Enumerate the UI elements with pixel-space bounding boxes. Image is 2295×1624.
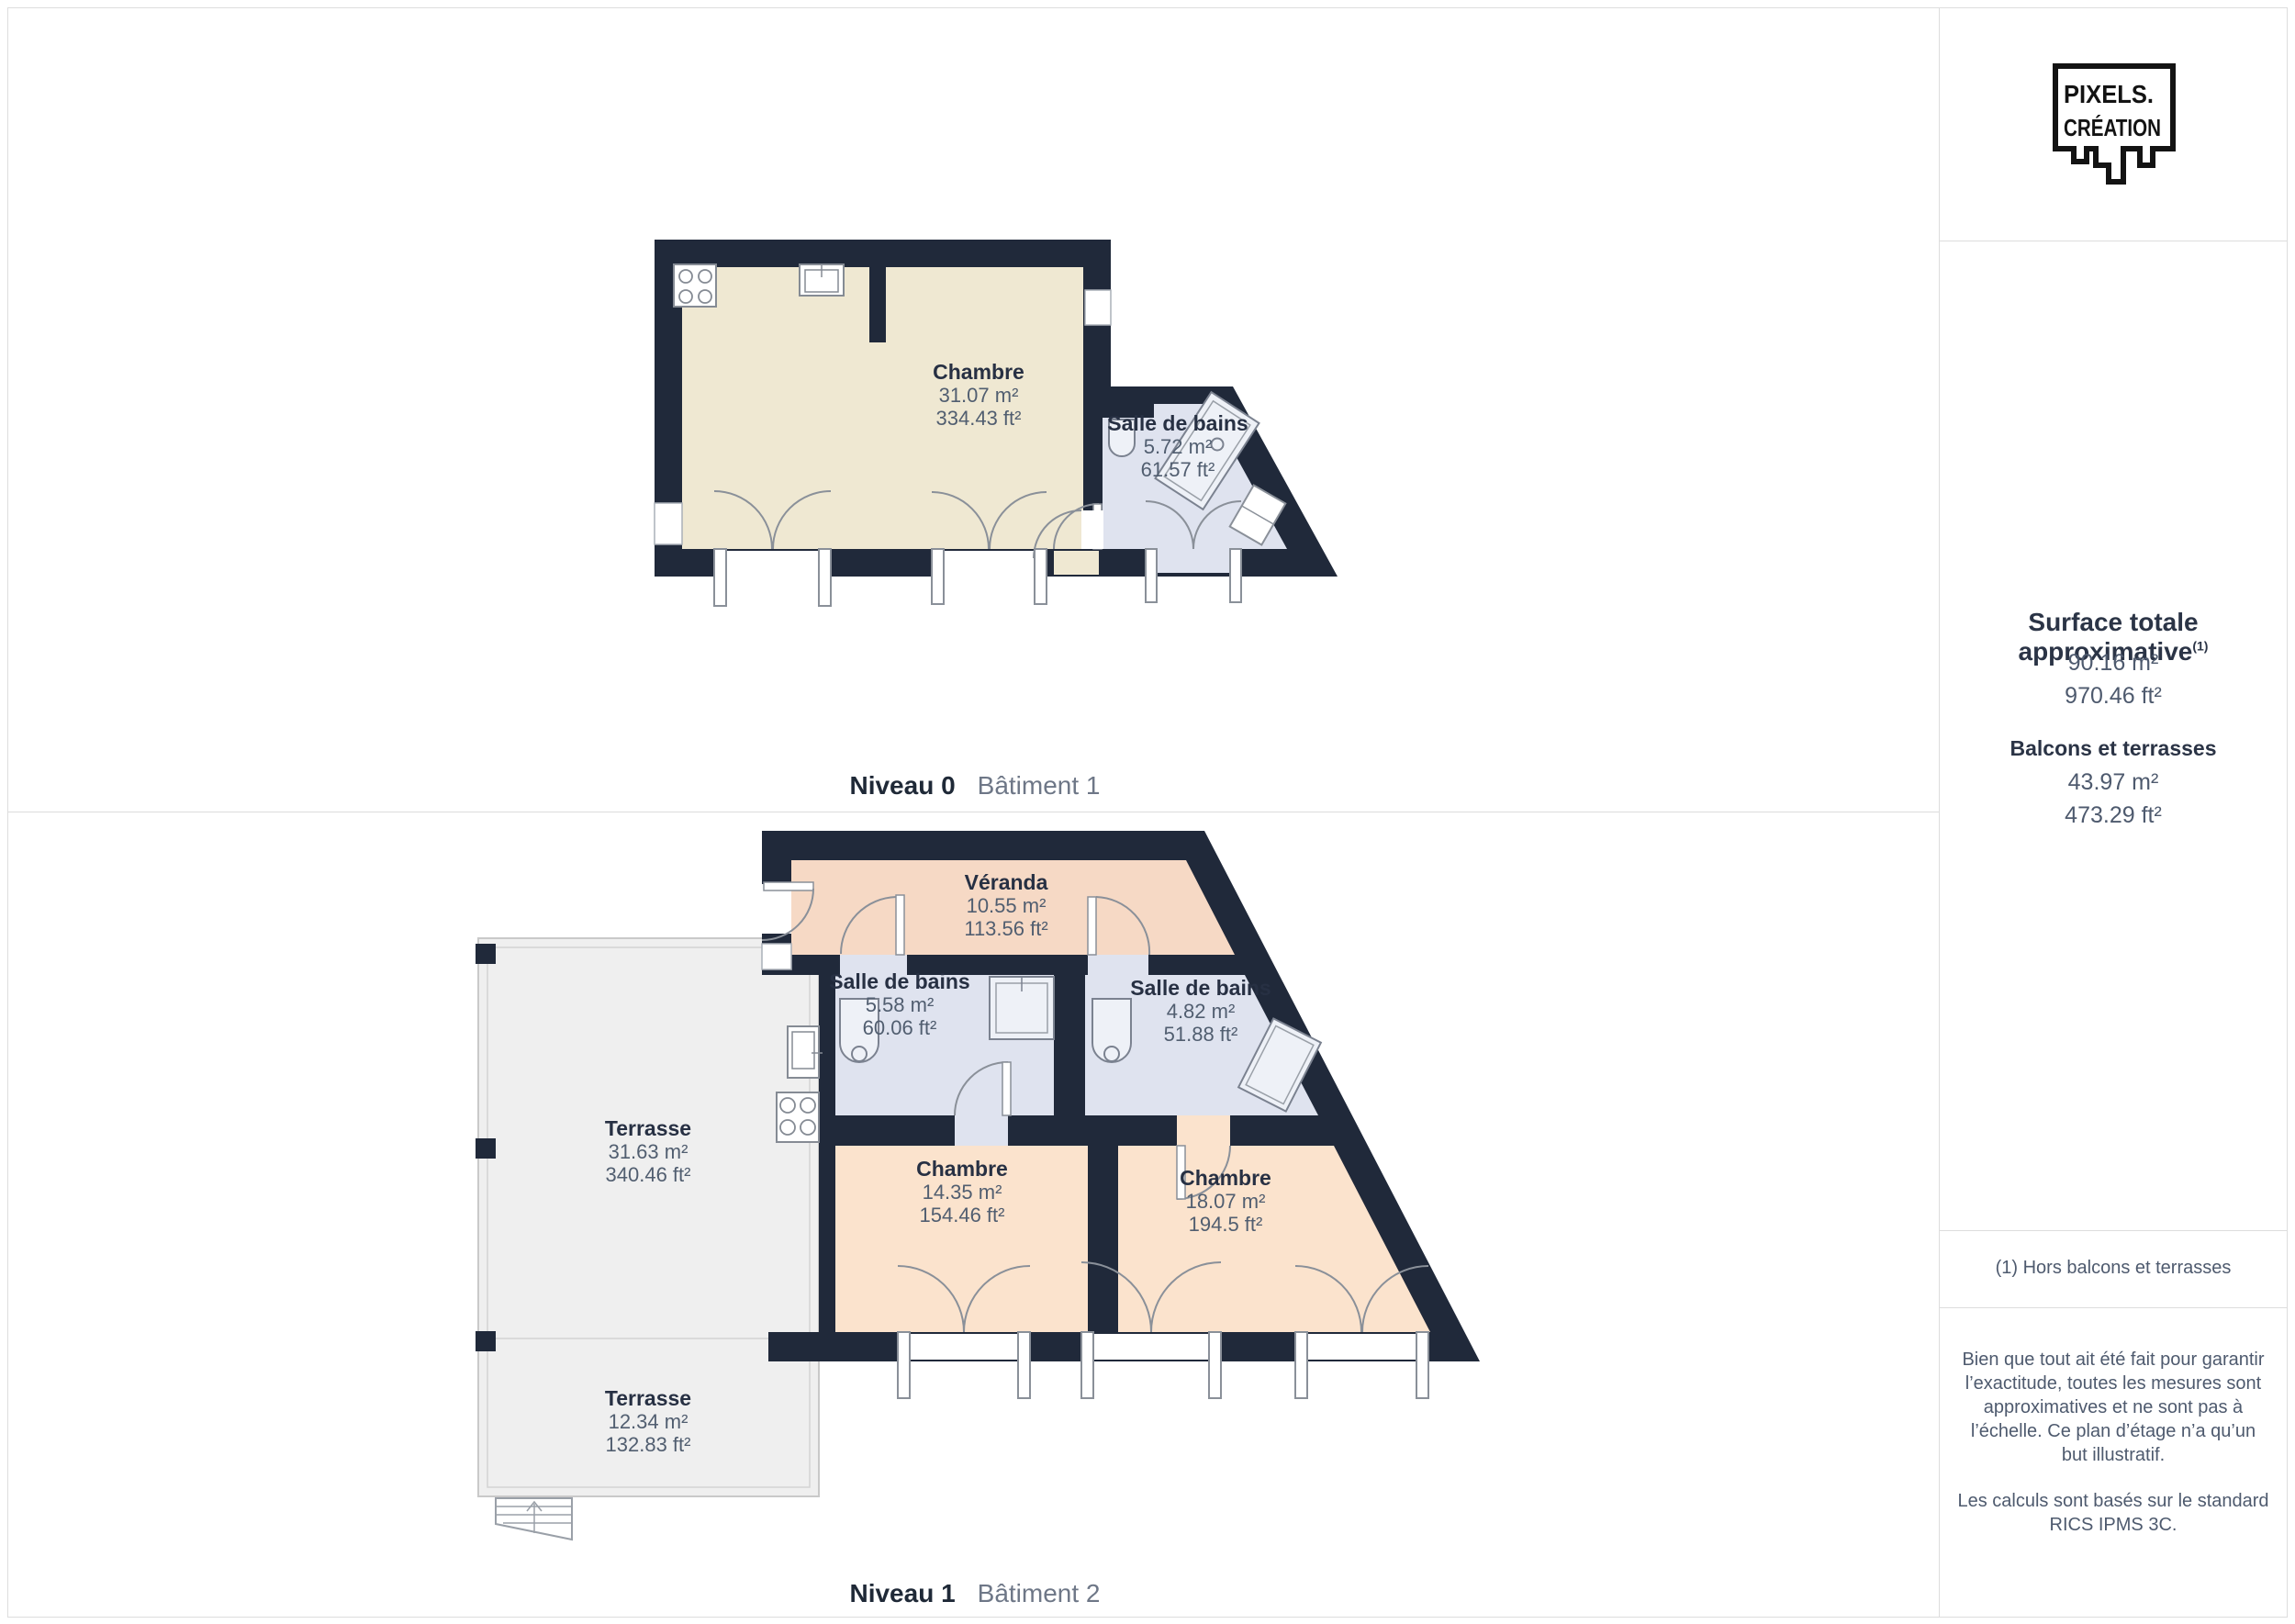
room-name: Chambre xyxy=(1180,1166,1271,1190)
niveau0-caption: Niveau 0Bâtiment 1 xyxy=(849,771,1100,801)
room-area-m2: 10.55 m² xyxy=(964,894,1047,917)
room-name: Terrasse xyxy=(605,1116,691,1140)
room-area-ft2: 194.5 ft² xyxy=(1180,1213,1271,1236)
room-name: Salle de bains xyxy=(1130,976,1271,1000)
total-area-ft2: 970.46 ft² xyxy=(1939,683,2288,710)
level-name: Niveau 1 xyxy=(849,1579,955,1607)
room-area-m2: 5.58 m² xyxy=(829,993,969,1016)
room-area-m2: 18.07 m² xyxy=(1180,1190,1271,1213)
disclaimer-standard: Les calculs sont basés sur le standard R… xyxy=(1957,1489,2269,1537)
sink-icon xyxy=(788,1026,823,1078)
building-name: Bâtiment 1 xyxy=(978,771,1101,800)
room-label-terrasse-top: Terrasse 31.63 m² 340.46 ft² xyxy=(605,1116,691,1186)
niveau1-caption: Niveau 1Bâtiment 2 xyxy=(849,1579,1100,1608)
disclaimer-accuracy: Bien que tout ait été fait pour garantir… xyxy=(1957,1348,2269,1467)
room-area-ft2: 113.56 ft² xyxy=(964,917,1047,940)
level-name: Niveau 0 xyxy=(849,771,955,800)
terrace-post xyxy=(476,1331,496,1351)
toilet-icon xyxy=(1092,999,1131,1062)
room-label-chambre-right: Chambre 18.07 m² 194.5 ft² xyxy=(1180,1166,1271,1236)
logo-text-line2: CRÉATION xyxy=(2064,114,2161,141)
room-name: Chambre xyxy=(916,1157,1008,1181)
sidebar-divider-top xyxy=(1939,241,2287,241)
room-label-terrasse-bottom: Terrasse 12.34 m² 132.83 ft² xyxy=(605,1386,691,1456)
stove-icon xyxy=(674,264,716,307)
room-area-m2: 12.34 m² xyxy=(605,1410,691,1433)
room-name: Salle de bains xyxy=(829,969,969,993)
floorplan-page: Chambre 31.07 m² 334.43 ft² Salle de bai… xyxy=(0,0,2295,1624)
room-area-ft2: 132.83 ft² xyxy=(605,1433,691,1456)
logo-text-line1: PIXELS. xyxy=(2064,80,2154,108)
sidebar-footnote: (1) Hors balcons et terrasses xyxy=(1939,1258,2288,1279)
room-area-m2: 5.72 m² xyxy=(1107,435,1248,458)
terrace-post xyxy=(476,1138,496,1159)
window-icon xyxy=(762,944,791,969)
room-label-sdb-left: Salle de bains 5.58 m² 60.06 ft² xyxy=(829,969,969,1039)
room-area-m2: 31.07 m² xyxy=(933,384,1024,407)
sink-icon xyxy=(800,264,844,296)
balconies-m2: 43.97 m² xyxy=(1939,769,2288,796)
pixels-creation-logo: PIXELS. CRÉATION xyxy=(2050,61,2180,193)
window-icon xyxy=(1085,290,1111,325)
room-label-veranda: Véranda 10.55 m² 113.56 ft² xyxy=(964,870,1047,940)
room-area-ft2: 60.06 ft² xyxy=(829,1016,969,1039)
terrace-post xyxy=(476,944,496,964)
sidebar-divider-footnote-bottom xyxy=(1939,1307,2287,1308)
total-area-m2: 90.16 m² xyxy=(1939,650,2288,677)
room-name: Véranda xyxy=(964,870,1047,894)
room-name: Salle de bains xyxy=(1107,411,1248,435)
window-icon xyxy=(655,503,682,544)
balconies-ft2: 473.29 ft² xyxy=(1939,802,2288,829)
room-area-ft2: 61.57 ft² xyxy=(1107,458,1248,481)
room-area-ft2: 334.43 ft² xyxy=(933,407,1024,430)
niveau0-bathroom-door-gap xyxy=(1146,549,1241,573)
room-area-m2: 14.35 m² xyxy=(916,1181,1008,1204)
room-area-ft2: 51.88 ft² xyxy=(1130,1023,1271,1046)
room-label-chambre-n0: Chambre 31.07 m² 334.43 ft² xyxy=(933,360,1024,430)
room-area-m2: 4.82 m² xyxy=(1130,1000,1271,1023)
room-label-sdb-n0: Salle de bains 5.72 m² 61.57 ft² xyxy=(1107,411,1248,481)
room-name: Chambre xyxy=(933,360,1024,384)
room-area-ft2: 154.46 ft² xyxy=(916,1204,1008,1226)
room-name: Terrasse xyxy=(605,1386,691,1410)
room-label-sdb-right: Salle de bains 4.82 m² 51.88 ft² xyxy=(1130,976,1271,1046)
room-label-chambre-left: Chambre 14.35 m² 154.46 ft² xyxy=(916,1157,1008,1226)
shower-icon xyxy=(990,977,1054,1039)
stove-icon xyxy=(777,1092,819,1142)
sidebar-divider-footnote-top xyxy=(1939,1230,2287,1231)
niveau0-wall-stub xyxy=(869,267,886,342)
stairs-icon xyxy=(496,1498,572,1540)
room-area-ft2: 340.46 ft² xyxy=(605,1163,691,1186)
room-area-m2: 31.63 m² xyxy=(605,1140,691,1163)
balconies-heading: Balcons et terrasses xyxy=(1939,736,2288,761)
levels-divider xyxy=(7,812,1939,812)
building-name: Bâtiment 2 xyxy=(978,1579,1101,1607)
